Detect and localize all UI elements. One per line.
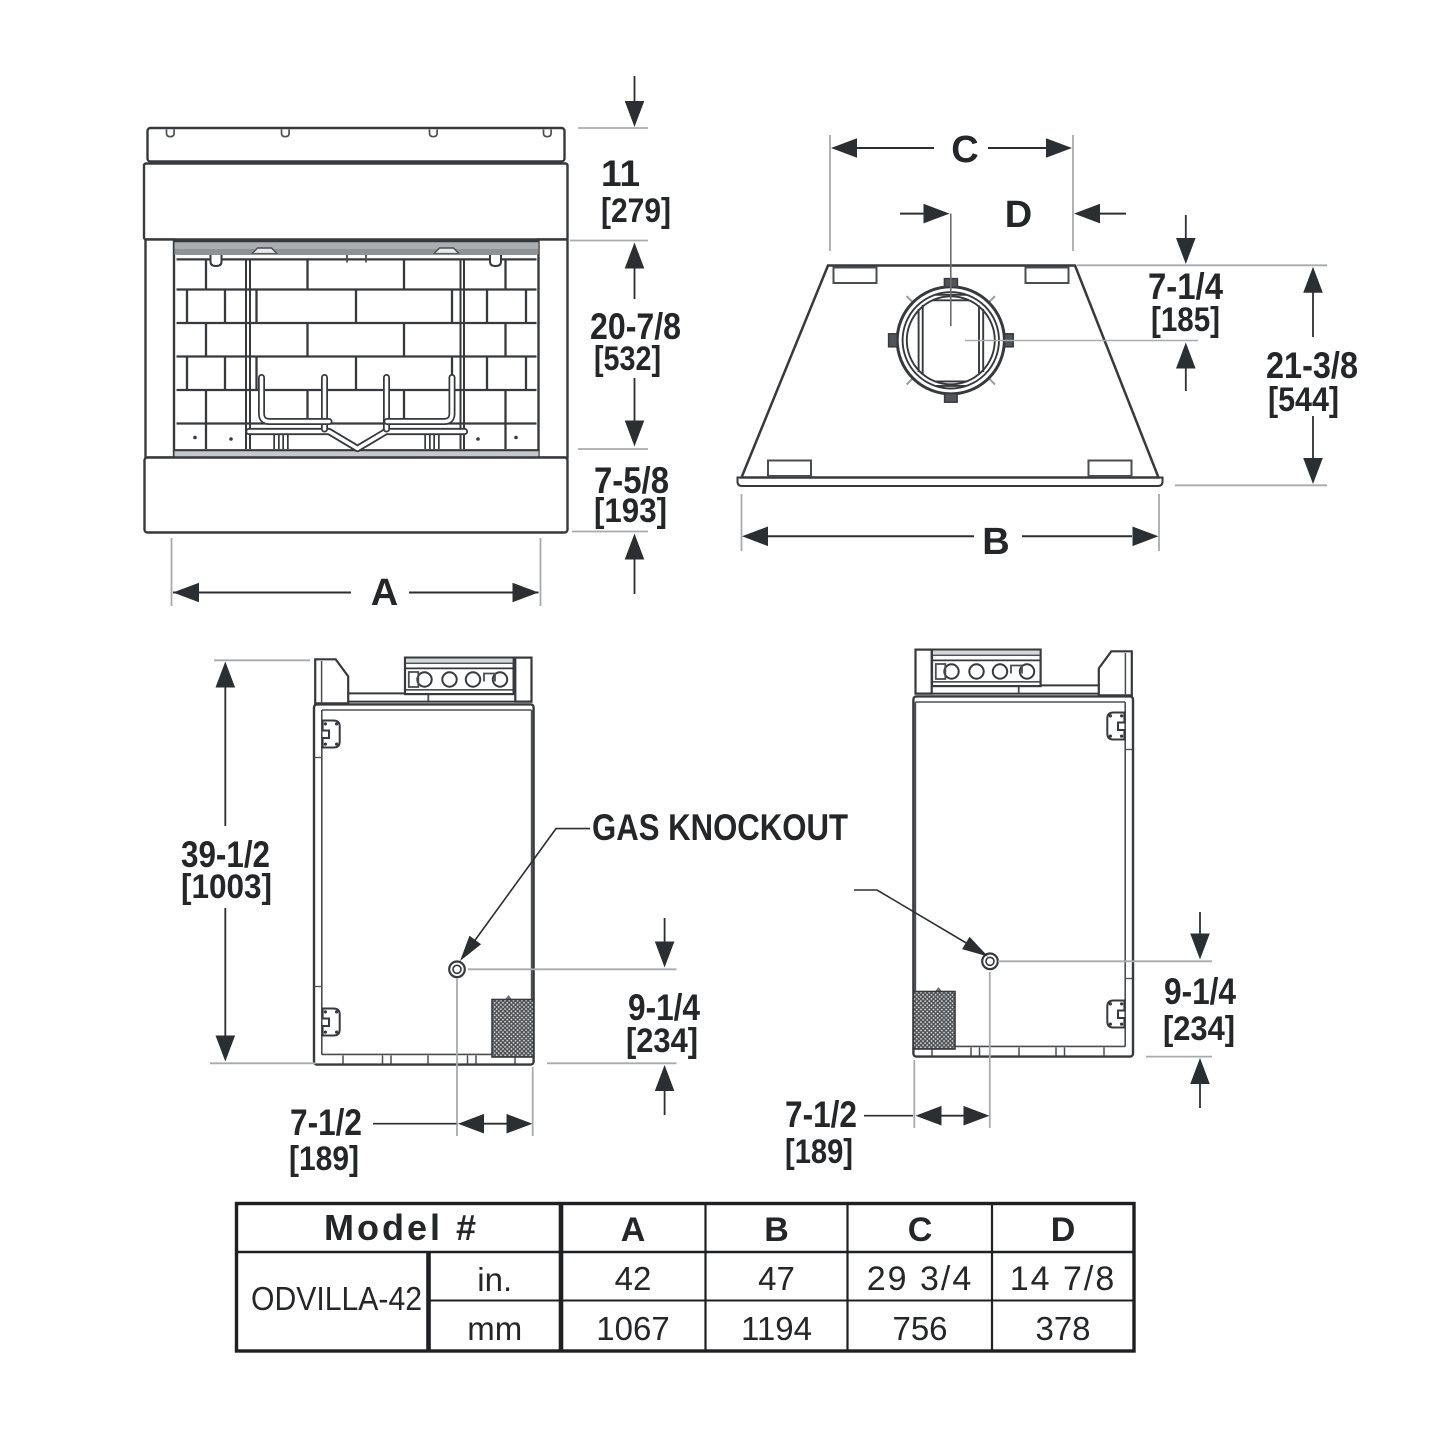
svg-text:[185]: [185] bbox=[1151, 301, 1220, 339]
svg-text:[193]: [193] bbox=[594, 492, 667, 530]
svg-text:11: 11 bbox=[601, 153, 640, 194]
svg-text:D: D bbox=[1051, 1211, 1076, 1249]
svg-text:[532]: [532] bbox=[594, 340, 661, 378]
svg-text:[189]: [189] bbox=[785, 1133, 853, 1171]
svg-text:9-1/4: 9-1/4 bbox=[1164, 971, 1236, 1012]
svg-text:GAS KNOCKOUT: GAS KNOCKOUT bbox=[592, 807, 848, 848]
svg-text:47: 47 bbox=[758, 1260, 795, 1297]
svg-text:[1003]: [1003] bbox=[181, 868, 272, 906]
svg-text:[544]: [544] bbox=[1268, 381, 1339, 419]
svg-text:7-1/2: 7-1/2 bbox=[785, 1094, 857, 1135]
svg-text:Model #: Model # bbox=[324, 1207, 479, 1248]
svg-text:756: 756 bbox=[892, 1310, 947, 1347]
svg-text:C: C bbox=[951, 129, 978, 171]
svg-text:mm: mm bbox=[467, 1310, 522, 1347]
svg-text:A: A bbox=[371, 572, 398, 614]
svg-text:42: 42 bbox=[615, 1260, 652, 1297]
svg-text:[234]: [234] bbox=[1163, 1010, 1235, 1048]
svg-text:21-3/8: 21-3/8 bbox=[1266, 345, 1358, 386]
svg-text:7-1/2: 7-1/2 bbox=[290, 1102, 362, 1143]
svg-text:A: A bbox=[621, 1211, 646, 1249]
svg-text:[189]: [189] bbox=[289, 1140, 359, 1178]
svg-text:ODVILLA-42: ODVILLA-42 bbox=[251, 1280, 422, 1317]
svg-text:C: C bbox=[908, 1211, 933, 1249]
svg-text:B: B bbox=[982, 521, 1009, 563]
svg-text:[234]: [234] bbox=[626, 1022, 698, 1060]
svg-text:1067: 1067 bbox=[596, 1310, 669, 1347]
svg-text:378: 378 bbox=[1035, 1310, 1090, 1347]
svg-text:B: B bbox=[764, 1211, 789, 1249]
svg-text:in.: in. bbox=[477, 1261, 512, 1298]
svg-text:14 7/8: 14 7/8 bbox=[1010, 1260, 1117, 1298]
svg-text:1194: 1194 bbox=[741, 1310, 812, 1347]
svg-text:D: D bbox=[1005, 194, 1032, 236]
svg-text:[279]: [279] bbox=[601, 192, 671, 230]
svg-text:29 3/4: 29 3/4 bbox=[867, 1260, 974, 1298]
